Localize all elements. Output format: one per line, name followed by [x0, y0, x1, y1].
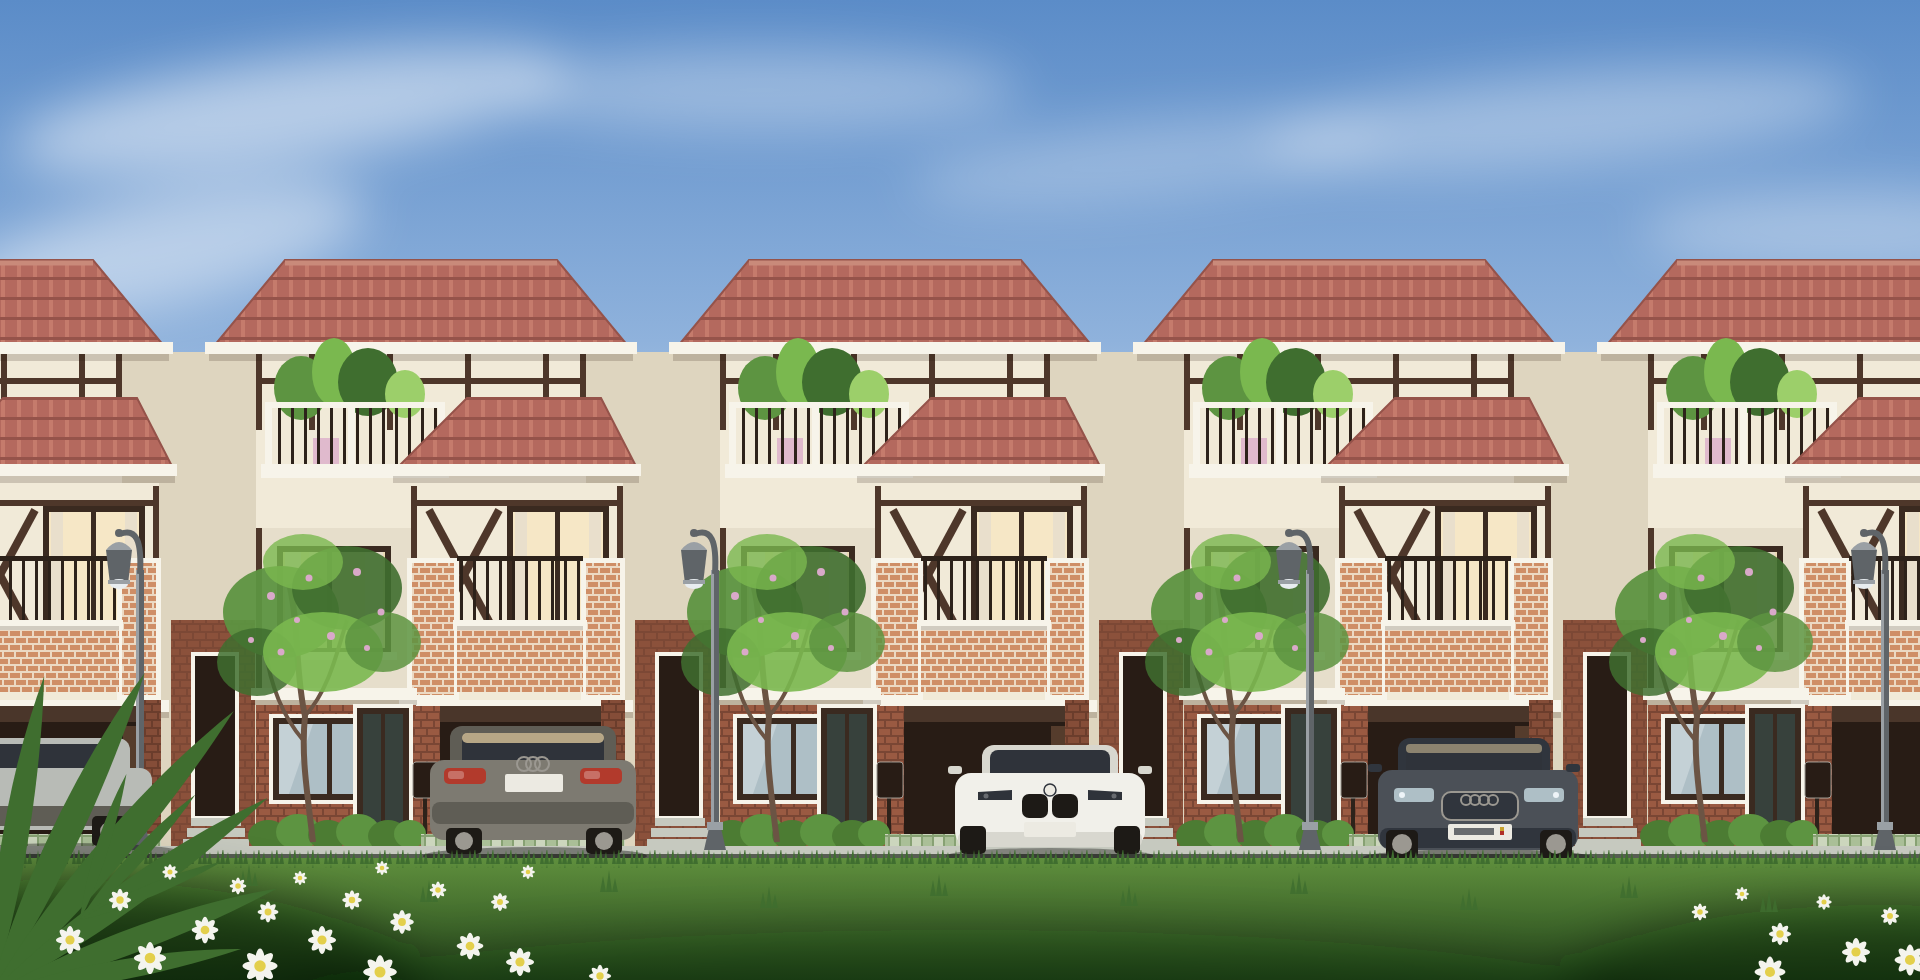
villa-row-scene	[0, 0, 1920, 980]
grass-fringe	[0, 850, 1920, 868]
architectural-rendering	[0, 0, 1920, 980]
